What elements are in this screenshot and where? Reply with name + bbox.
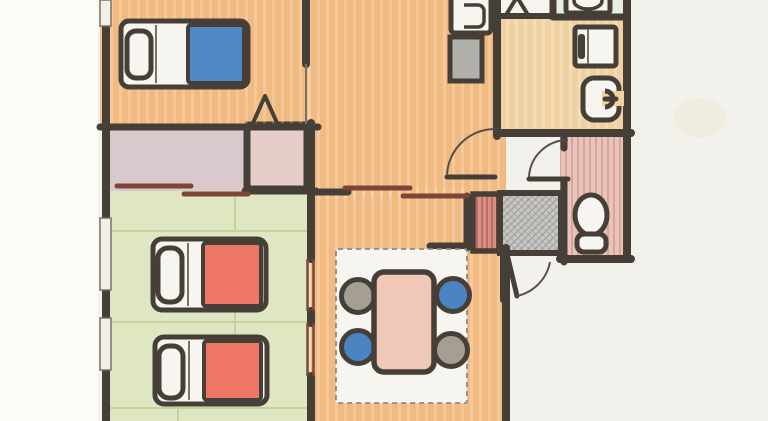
vanity-faucet [578, 34, 585, 59]
single-bed [121, 21, 248, 87]
closet-floor [104, 127, 248, 191]
chair [435, 334, 468, 367]
closet-sub-floor [248, 124, 306, 188]
dining-set [336, 249, 470, 403]
window [100, 218, 111, 290]
pillow [159, 346, 183, 398]
window [100, 318, 111, 370]
dining-table [374, 272, 434, 372]
blanket [204, 341, 261, 400]
window [100, 0, 111, 26]
paper-left-margin [0, 0, 98, 421]
single-bed [155, 337, 267, 404]
blanket [188, 25, 244, 83]
paper-stain [674, 98, 726, 138]
genkan-entry [473, 193, 561, 253]
chair [437, 279, 470, 312]
floor-plan-image [0, 0, 768, 421]
pillow [127, 31, 151, 78]
blanket [203, 243, 261, 306]
toilet [575, 195, 607, 252]
bathtub [583, 78, 624, 120]
genkan-hatch [503, 196, 558, 250]
toilet-tank [577, 234, 606, 252]
laundry-pan [566, 0, 610, 13]
floor-plan [0, 0, 768, 421]
pillow [158, 248, 182, 302]
toilet-bowl [575, 195, 607, 235]
chair [342, 280, 375, 313]
shoe-cabinet-texture [473, 194, 499, 251]
single-bed [153, 239, 266, 310]
chair [342, 331, 375, 364]
washing-machine [450, 37, 482, 81]
